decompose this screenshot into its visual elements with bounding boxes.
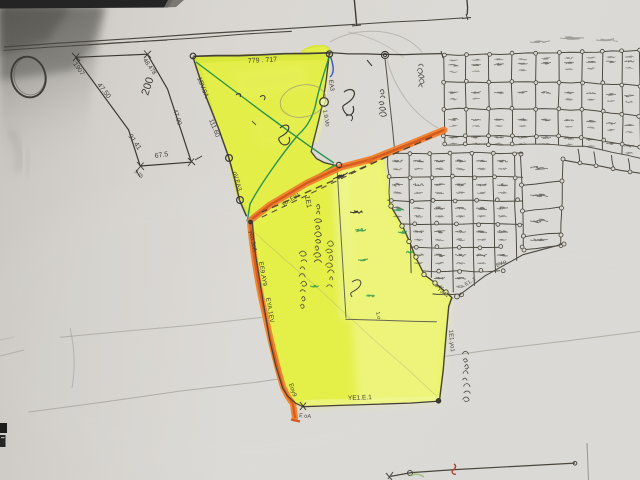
svg-text:YE1.E.1: YE1.E.1 [348,394,372,402]
svg-text:E oA: E oA [299,413,312,420]
